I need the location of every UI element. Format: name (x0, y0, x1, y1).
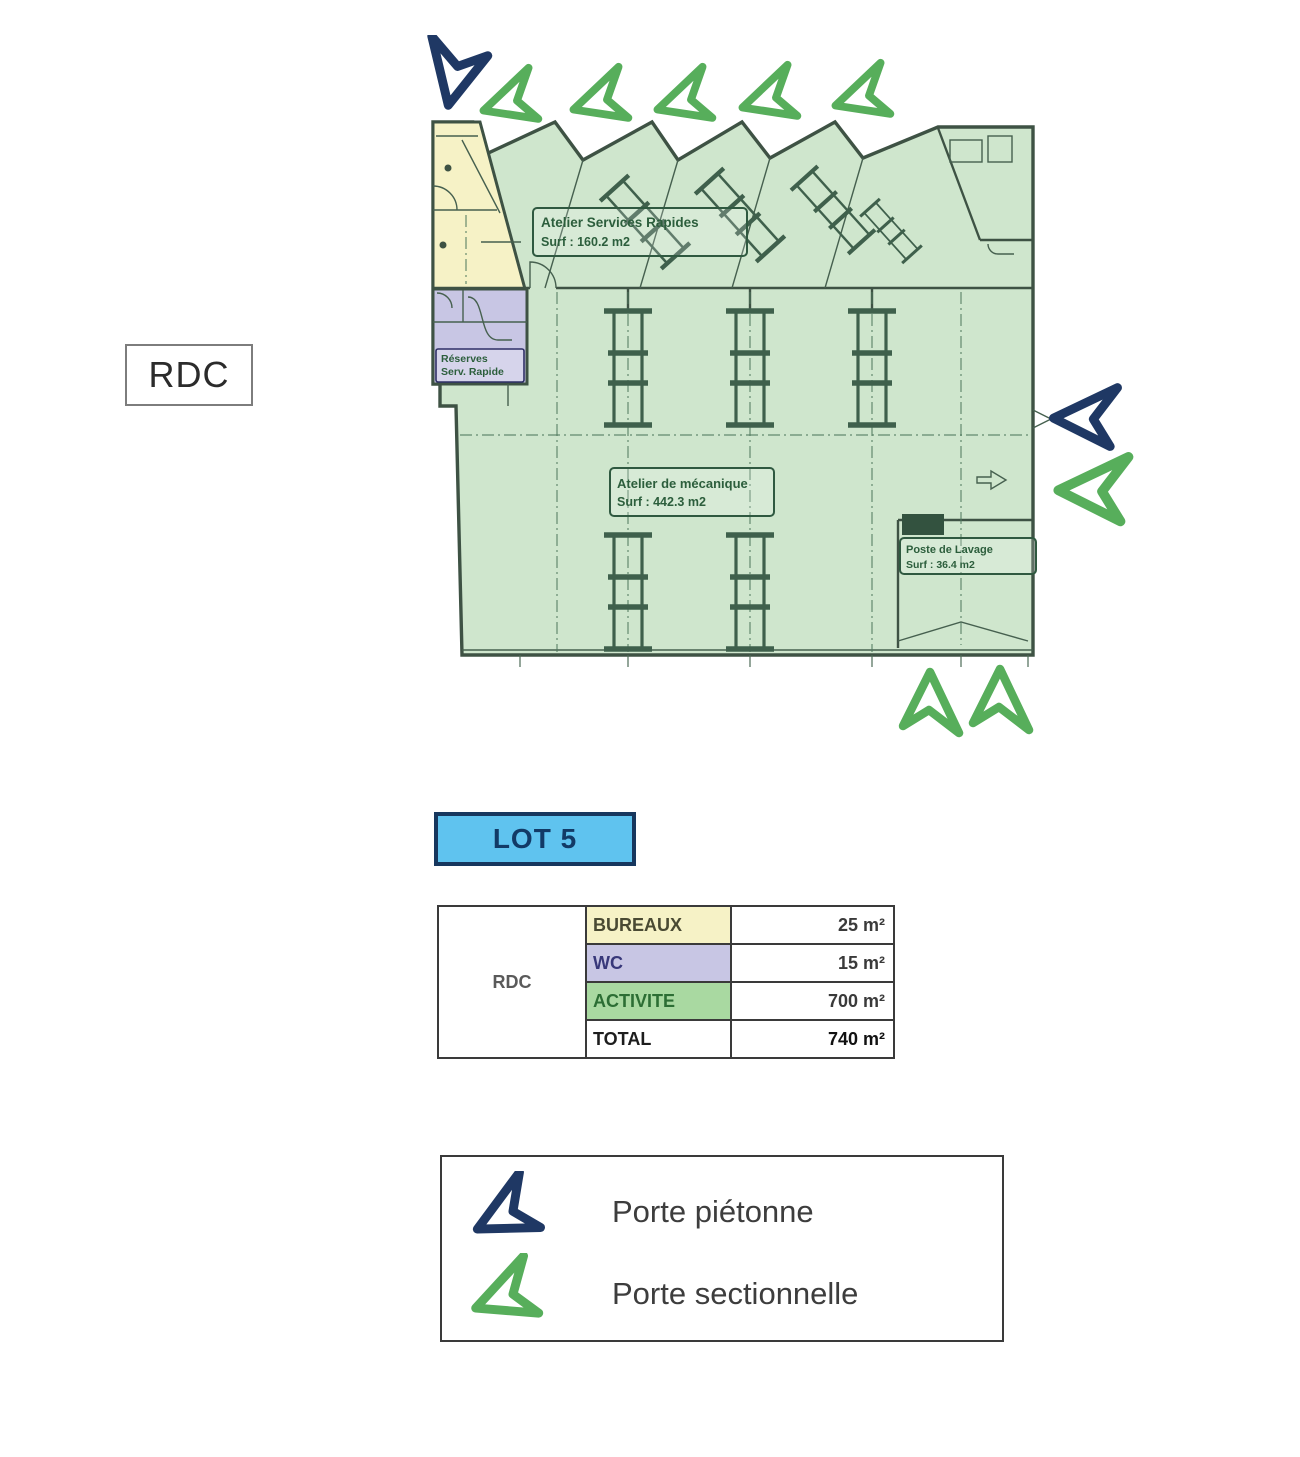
lot-badge: LOT 5 (434, 812, 636, 866)
table-value-total: 740 m² (731, 1020, 894, 1058)
table-value-wc: 15 m² (731, 944, 894, 982)
sectional-door-arrow (827, 63, 896, 129)
legend-item-sectional: Porte sectionnelle (464, 1253, 858, 1335)
legend-label-pedestrian: Porte piétonne (612, 1194, 814, 1230)
table-value-activite: 700 m² (731, 982, 894, 1020)
atelier-services-name: Atelier Services Rapides (541, 215, 699, 230)
sectional-door-arrow (1058, 457, 1128, 521)
area-table: RDC BUREAUX 25 m² WC 15 m² ACTIVITE 700 … (437, 905, 895, 1059)
atelier-mecanique-name: Atelier de mécanique (617, 476, 748, 491)
sectional-door-arrow (649, 67, 718, 133)
floor-label: RDC (149, 354, 230, 396)
atelier-mecanique-surface: Surf : 442.3 m2 (617, 495, 706, 509)
poste-lavage-name: Poste de Lavage (906, 544, 993, 556)
table-label-activite: ACTIVITE (586, 982, 731, 1020)
table-value-bureaux: 25 m² (731, 906, 894, 944)
sectional-door-arrow (973, 669, 1029, 730)
pedestrian-door-symbol (1033, 410, 1051, 428)
sectional-door-arrow (734, 65, 803, 131)
floorplan-page: RDC (0, 0, 1300, 1457)
table-label-wc: WC (586, 944, 731, 982)
legend: Porte piétonne Porte sectionnelle (440, 1155, 1004, 1342)
pedestrian-door-arrow-icon (464, 1171, 546, 1253)
floor-label-box: RDC (125, 344, 253, 406)
table-label-total: TOTAL (586, 1020, 731, 1058)
table-label-bureaux: BUREAUX (586, 906, 731, 944)
legend-label-sectional: Porte sectionnelle (612, 1276, 858, 1312)
atelier-services-surface: Surf : 160.2 m2 (541, 235, 630, 249)
dimension-ticks (520, 655, 1028, 667)
pedestrian-door-arrow (1053, 388, 1117, 447)
sectional-door-arrow (565, 67, 634, 133)
lot-label: LOT 5 (493, 823, 577, 855)
sectional-door-arrow (903, 672, 959, 733)
floorplan-drawing: Atelier Services Rapides Surf : 160.2 m2… (410, 35, 1150, 750)
washing-equipment (902, 514, 944, 535)
pedestrian-door-arrow (419, 36, 490, 111)
legend-item-pedestrian: Porte piétonne (464, 1171, 814, 1253)
table-row: RDC BUREAUX 25 m² (438, 906, 894, 944)
sectional-door-arrow-icon (464, 1253, 546, 1335)
sectional-door-arrow (475, 68, 544, 134)
reserves-sub: Serv. Rapide (441, 366, 504, 378)
poste-lavage-surface: Surf : 36.4 m2 (906, 559, 975, 571)
reserves-name: Réserves (441, 353, 488, 365)
table-floor-cell: RDC (438, 906, 586, 1058)
